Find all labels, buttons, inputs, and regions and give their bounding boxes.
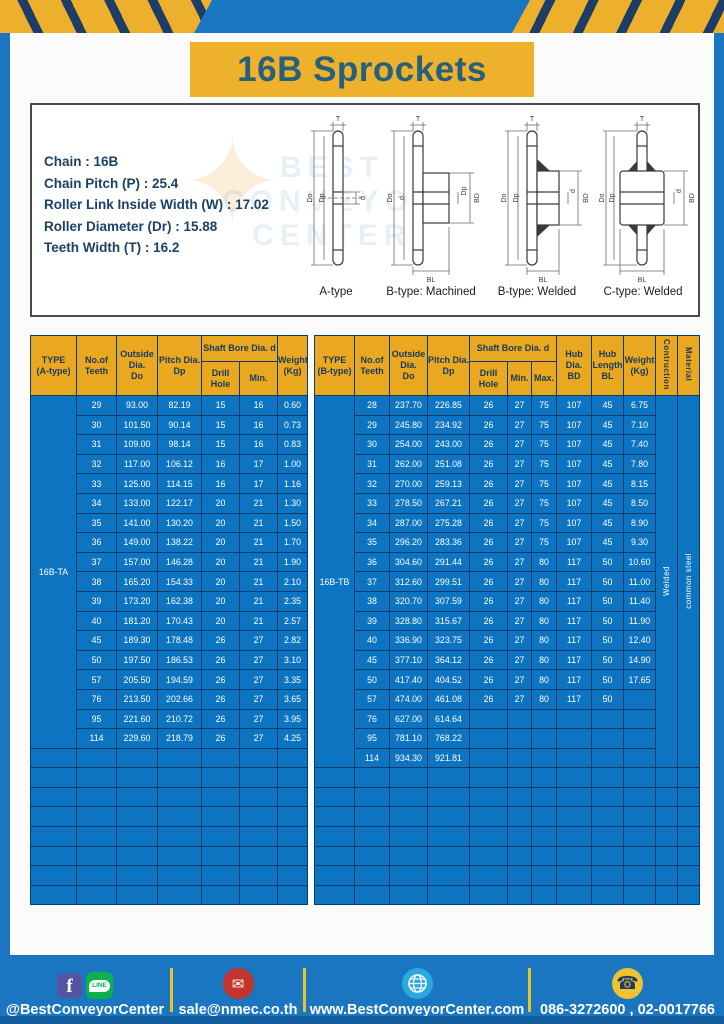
svg-text:d: d [676,189,683,193]
table-cell: 6.75 [624,396,656,416]
svg-text:T: T [416,116,421,123]
svg-text:Dp: Dp [461,186,468,195]
empty-cell [469,768,507,788]
table-row: 36304.60291.442627801175010.60 [314,552,699,572]
table-cell: 781.10 [389,729,427,749]
table-cell: 75 [531,454,556,474]
table-cell: 0.73 [278,415,308,435]
empty-cell [531,748,556,768]
empty-cell [240,827,278,847]
table-cell: 117 [557,670,592,690]
table-cell: 50 [592,572,624,592]
table-b-type: TYPE(B-type) No.ofTeeth OutsideDia.Do Pi… [314,335,700,905]
footer-phone-section: ☎ 086-3272600 , 02-0017766 [531,955,724,1024]
col-min: Min. [507,362,531,396]
table-cell: 75 [531,513,556,533]
empty-cell [389,807,427,827]
empty-cell [557,787,592,807]
table-cell: 267.21 [427,493,469,513]
empty-cell [624,885,656,905]
table-cell: 4.25 [278,729,308,749]
table-cell: 27 [507,493,531,513]
material-cell: common steel [678,396,700,768]
svg-text:BD: BD [474,193,481,203]
table-cell: 75 [531,396,556,416]
col-teeth: No.ofTeeth [77,336,117,396]
col-teeth: No.ofTeeth [354,336,389,396]
col-max: Max. [531,362,556,396]
table-cell: 3.35 [278,670,308,690]
table-cell: 8.15 [624,474,656,494]
col-material: Material [678,336,700,396]
table-cell: 1.30 [278,493,308,513]
title-banner: 16B Sprockets [190,42,534,97]
table-cell: 262.00 [389,454,427,474]
spec-roller-dia: Roller Diameter (Dr) : 15.88 [44,216,269,238]
empty-cell [31,768,77,788]
table-row: 38320.70307.592627801175011.40 [314,591,699,611]
table-cell: 45 [592,533,624,553]
empty-cell [427,885,469,905]
table-cell: 107 [557,513,592,533]
empty-cell [389,846,427,866]
col-outside-dia: OutsideDia.Do [117,336,158,396]
empty-cell [117,748,158,768]
empty-cell [678,787,700,807]
empty-cell [278,846,308,866]
empty-cell [389,866,427,886]
table-cell: 17.65 [624,670,656,690]
spec-chain: Chain : 16B [44,151,269,173]
svg-text:BL: BL [539,277,548,284]
chain-specs: Chain : 16B Chain Pitch (P) : 25.4 Rolle… [44,151,269,259]
line-glyph: LINE [89,980,110,992]
empty-row [314,885,699,905]
table-cell: 278.50 [389,493,427,513]
svg-text:Do: Do [501,193,508,202]
footer-website-section: www.BestConveyorCenter.com [306,955,528,1024]
empty-cell [678,768,700,788]
table-cell: 283.36 [427,533,469,553]
table-cell: 26 [202,650,240,670]
empty-cell [117,885,158,905]
a-type-label: A-type [319,286,352,298]
empty-cell [624,846,656,866]
svg-text:BL: BL [638,277,647,284]
table-cell: 27 [507,572,531,592]
empty-cell [624,748,656,768]
table-cell: 90.14 [158,415,202,435]
table-cell: 26 [469,572,507,592]
table-cell: 38 [77,572,117,592]
table-row: 30254.00243.00262775107457.40 [314,435,699,455]
empty-cell [656,866,678,886]
table-cell: 114.15 [158,474,202,494]
col-weight: Weight(Kg) [624,336,656,396]
empty-cell [202,885,240,905]
table-cell: 50 [592,670,624,690]
empty-cell [624,689,656,709]
table-cell: 251.08 [427,454,469,474]
table-cell: 40 [77,611,117,631]
empty-cell [117,827,158,847]
table-cell: 26 [469,611,507,631]
table-cell: 16 [202,474,240,494]
table-cell: 26 [469,435,507,455]
empty-cell [592,807,624,827]
table-row: 114934.30921.81 [314,748,699,768]
empty-cell [557,807,592,827]
table-cell: 117 [557,552,592,572]
phone-icon[interactable]: ☎ [612,968,643,999]
table-cell: 27 [507,454,531,474]
table-cell: 291.44 [427,552,469,572]
empty-cell [77,846,117,866]
table-cell: 80 [531,611,556,631]
table-cell: 34 [354,513,389,533]
table-cell: 287.00 [389,513,427,533]
table-cell: 2.35 [278,591,308,611]
table-cell: 20 [202,552,240,572]
empty-row [31,846,308,866]
table-cell: 2.82 [278,631,308,651]
table-row: 32270.00259.13262775107458.15 [314,474,699,494]
table-cell: 768.22 [427,729,469,749]
table-cell: 189.30 [117,631,158,651]
empty-cell [427,866,469,886]
empty-row [314,866,699,886]
table-cell: 15 [202,435,240,455]
table-cell: 82.19 [158,396,202,416]
table-cell: 170.43 [158,611,202,631]
table-cell: 107 [557,396,592,416]
table-cell: 336.90 [389,631,427,651]
table-cell: 50 [592,552,624,572]
empty-cell [278,748,308,768]
table-row: 16B-TA2993.0082.1915160.60 [31,396,308,416]
empty-cell [507,866,531,886]
table-cell: 154.33 [158,572,202,592]
table-cell: 149.00 [117,533,158,553]
table-cell: 98.14 [158,435,202,455]
table-cell: 117 [557,572,592,592]
table-cell: 934.30 [389,748,427,768]
table-cell: 921.81 [427,748,469,768]
facebook-icon[interactable]: f [57,973,82,998]
figure-a-type: T Do Dp d A-type [294,113,378,298]
empty-row [31,748,308,768]
table-cell: 109.00 [117,435,158,455]
table-cell: 117 [557,650,592,670]
table-row: 37312.60299.512627801175011.00 [314,572,699,592]
table-cell: 312.60 [389,572,427,592]
table-cell: 26 [202,631,240,651]
table-b-body: 16B-TB28237.70226.85262775107456.75Welde… [314,396,699,905]
table-cell: 20 [202,533,240,553]
empty-cell [557,729,592,749]
empty-cell [656,885,678,905]
a-type-drawing: T Do Dp d [294,113,378,285]
empty-cell [507,846,531,866]
table-a-type: TYPE(A-type) No.ofTeeth OutsideDia.Do Pi… [30,335,308,905]
table-row: 33278.50267.21262775107458.50 [314,493,699,513]
table-cell: 11.40 [624,591,656,611]
svg-text:Do: Do [599,193,606,202]
table-cell: 80 [531,591,556,611]
table-cell: 304.60 [389,552,427,572]
table-cell: 0.83 [278,435,308,455]
table-cell: 75 [531,533,556,553]
table-cell: 320.70 [389,591,427,611]
table-cell: 181.20 [117,611,158,631]
table-cell: 80 [531,650,556,670]
table-cell: 296.20 [389,533,427,553]
table-cell: 29 [77,396,117,416]
svg-text:BD: BD [583,193,590,203]
empty-cell [656,827,678,847]
hazard-stripes-right [512,0,724,33]
table-cell: 122.17 [158,493,202,513]
table-cell: 1.16 [278,474,308,494]
empty-cell [354,866,389,886]
empty-cell [389,885,427,905]
empty-cell [314,846,354,866]
empty-cell [656,846,678,866]
c-type-welded-drawing: T Do Dp d BD BL [590,113,696,285]
table-cell: 34 [77,493,117,513]
table-cell: 27 [240,689,278,709]
empty-cell [531,846,556,866]
table-cell: 11.00 [624,572,656,592]
table-cell: 202.66 [158,689,202,709]
svg-text:T: T [336,116,341,123]
table-cell: 45 [592,396,624,416]
table-cell: 75 [531,474,556,494]
table-cell: 33 [354,493,389,513]
empty-cell [77,885,117,905]
table-cell: 28 [354,396,389,416]
construction-cell-text: Welded [662,566,672,596]
empty-cell [117,768,158,788]
svg-text:BL: BL [427,277,436,284]
empty-cell [202,866,240,886]
table-cell: 614.64 [427,709,469,729]
table-cell: 27 [507,689,531,709]
table-cell: 27 [240,709,278,729]
empty-cell [592,729,624,749]
empty-cell [278,807,308,827]
table-cell: 50 [592,611,624,631]
empty-cell [469,729,507,749]
table-cell: 114 [77,729,117,749]
table-cell: 80 [531,689,556,709]
table-cell: 107 [557,533,592,553]
empty-cell [624,807,656,827]
table-cell: 16 [202,454,240,474]
table-cell: 27 [507,435,531,455]
table-cell: 221.60 [117,709,158,729]
spec-pitch: Chain Pitch (P) : 25.4 [44,173,269,195]
empty-cell [389,768,427,788]
table-cell: 26 [469,533,507,553]
empty-cell [240,807,278,827]
table-cell: 45 [77,631,117,651]
table-cell: 157.00 [117,552,158,572]
empty-cell [507,827,531,847]
table-cell: 31 [77,435,117,455]
table-cell: 16 [240,415,278,435]
table-cell: 76 [77,689,117,709]
table-cell: 27 [507,611,531,631]
empty-cell [31,846,77,866]
phone-glyph: ☎ [616,973,638,994]
empty-cell [531,729,556,749]
empty-cell [592,768,624,788]
table-cell: 26 [469,650,507,670]
table-cell: 197.50 [117,650,158,670]
table-cell: 107 [557,474,592,494]
table-cell: 1.50 [278,513,308,533]
table-cell: 57 [354,689,389,709]
table-cell: 26 [202,689,240,709]
table-cell: 27 [507,396,531,416]
empty-row [314,827,699,847]
empty-cell [531,768,556,788]
table-cell: 21 [240,591,278,611]
empty-cell [592,787,624,807]
col-drill-hole: Drill Hole [469,362,507,396]
table-cell: 133.00 [117,493,158,513]
empty-cell [469,866,507,886]
table-cell: 26 [469,474,507,494]
table-cell: 101.50 [117,415,158,435]
empty-cell [314,807,354,827]
table-cell: 57 [77,670,117,690]
empty-row [31,866,308,886]
svg-text:Do: Do [387,193,394,202]
table-cell: 95 [77,709,117,729]
table-cell: 2.10 [278,572,308,592]
table-cell: 80 [531,670,556,690]
empty-cell [624,866,656,886]
empty-cell [354,846,389,866]
table-cell: 26 [469,552,507,572]
table-cell: 404.52 [427,670,469,690]
svg-text:Do: Do [307,193,314,202]
empty-cell [117,846,158,866]
empty-cell [592,709,624,729]
table-cell: 45 [592,493,624,513]
table-cell: 364.12 [427,650,469,670]
svg-text:T: T [530,116,535,123]
empty-cell [557,846,592,866]
table-cell: 93.00 [117,396,158,416]
empty-cell [158,885,202,905]
table-row: 39328.80315.672627801175011.90 [314,611,699,631]
table-cell: 107 [557,415,592,435]
empty-cell [557,748,592,768]
empty-cell [592,885,624,905]
table-cell: 26 [469,591,507,611]
empty-cell [240,866,278,886]
table-cell: 114 [354,748,389,768]
email-icon[interactable]: ✉ [223,968,254,999]
svg-text:Dp: Dp [513,193,520,202]
empty-cell [656,768,678,788]
table-cell: 26 [469,670,507,690]
empty-cell [531,709,556,729]
spec-drawing-box: ✦ BEST CONVEYOR CENTER Chain : 16B Chain… [30,103,700,317]
table-cell: 213.50 [117,689,158,709]
col-shaft-bore: Shaft Bore Dia. d [202,336,278,362]
empty-cell [314,768,354,788]
empty-row [31,768,308,788]
empty-cell [592,748,624,768]
empty-cell [240,846,278,866]
table-cell: 245.80 [389,415,427,435]
empty-cell [354,787,389,807]
table-cell: 27 [240,670,278,690]
table-cell: 36 [77,533,117,553]
table-cell: 3.10 [278,650,308,670]
svg-text:d: d [360,196,367,200]
globe-icon[interactable] [402,968,433,999]
empty-cell [31,748,77,768]
empty-cell [624,768,656,788]
b-type-welded-label: B-type: Welded [498,286,576,298]
empty-cell [278,885,308,905]
table-cell: 2.57 [278,611,308,631]
figure-b-type-machined: T Do d Dp BD BL B-type: [378,113,484,298]
table-cell: 27 [507,513,531,533]
empty-cell [354,827,389,847]
empty-cell [389,787,427,807]
col-pitch-dia: Pitch Dia.Dp [158,336,202,396]
empty-cell [158,768,202,788]
col-type: TYPE(A-type) [31,336,77,396]
table-row: 50417.40404.522627801175017.65 [314,670,699,690]
empty-cell [158,787,202,807]
table-cell: 210.72 [158,709,202,729]
empty-cell [314,866,354,886]
line-icon[interactable]: LINE [86,972,113,999]
empty-cell [678,866,700,886]
footer-email-section: ✉ sale@nmec.co.th [173,955,303,1024]
table-cell: 8.90 [624,513,656,533]
empty-cell [117,807,158,827]
spec-tables: TYPE(A-type) No.ofTeeth OutsideDia.Do Pi… [30,335,700,905]
b-type-machined-drawing: T Do d Dp BD BL [378,113,484,285]
table-cell: 20 [202,611,240,631]
empty-cell [469,827,507,847]
table-cell: 21 [240,611,278,631]
empty-cell [278,768,308,788]
empty-cell [278,787,308,807]
table-cell: 117.00 [117,454,158,474]
table-cell: 165.20 [117,572,158,592]
table-cell: 50 [592,650,624,670]
table-cell: 50 [592,631,624,651]
empty-cell [77,866,117,886]
table-cell: 27 [240,729,278,749]
table-cell: 12.40 [624,631,656,651]
table-cell: 7.80 [624,454,656,474]
table-cell: 76 [354,709,389,729]
table-cell: 117 [557,611,592,631]
table-row: 34287.00275.28262775107458.90 [314,513,699,533]
table-cell: 307.59 [427,591,469,611]
table-cell: 7.10 [624,415,656,435]
